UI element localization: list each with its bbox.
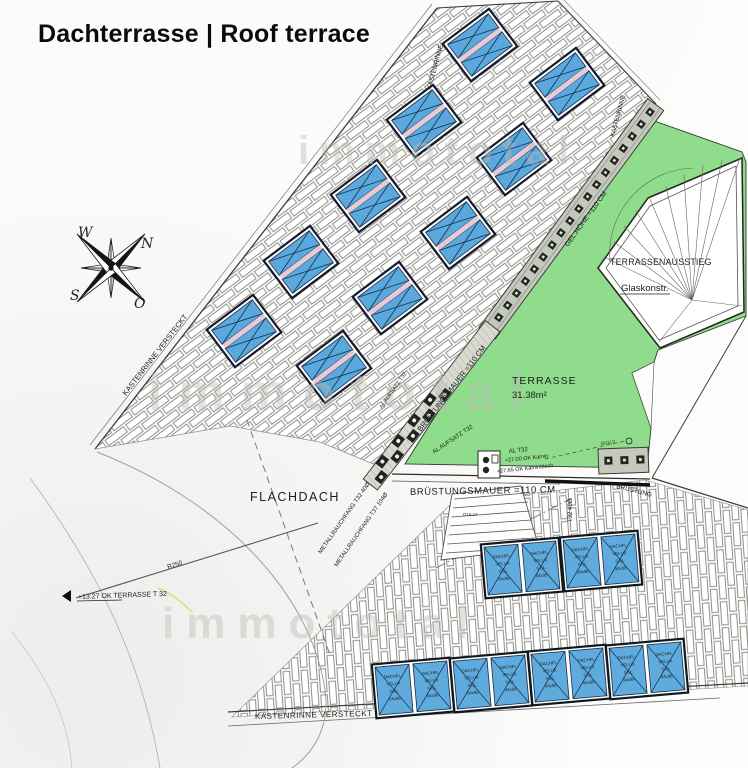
skylight-label: 94x98 xyxy=(583,679,596,685)
compass-s: S xyxy=(70,288,80,304)
skylight-label: 94x98 xyxy=(661,673,674,679)
t32-40-label: T32 40Ø xyxy=(568,498,574,522)
roof-plan-drawing: DACHFL.VELUXGGL94x98DACHFL.VELUXGGL94x98… xyxy=(0,0,748,768)
skylight-label: 94x98 xyxy=(427,692,440,698)
watermark-text: immototal xyxy=(298,129,579,173)
skylight-label: GGL xyxy=(389,688,399,694)
skylight-label: GGL xyxy=(615,558,625,564)
flachdach-label: FLACHDACH xyxy=(250,490,340,504)
skylight-window: DACHFL.VELUXGGL94x98DACHFL.VELUXGGL94x98 xyxy=(481,538,563,599)
skylight-label: 94x98 xyxy=(467,690,480,696)
kastenrinne-bottom-label: KASTENRINNE VERSTECKT xyxy=(255,709,373,721)
skylight-label: 94x98 xyxy=(615,565,628,571)
rauchfang2-label: METALLRAUCHFANG T37 104Ø xyxy=(334,492,390,568)
skylight-window: DACHFL.VELUXGGL94x98DACHFL.VELUXGGL94x98 xyxy=(560,531,642,592)
skylight-label: 94x98 xyxy=(505,686,518,692)
watermark-text: immototal xyxy=(148,364,540,422)
radius-label: R250 xyxy=(167,560,184,571)
skylight-window: DACHFL.VELUXGGL94x98DACHFL.VELUXGGL94x98 xyxy=(606,639,688,700)
ausstieg-label: TERRASSENAUSSTIEG xyxy=(610,257,712,267)
skylight-label: GGL xyxy=(536,565,546,571)
glaskonstr-label: Glaskonstr. xyxy=(621,283,669,294)
skylight-label: GGL xyxy=(505,679,515,685)
terrace-bottom-wall xyxy=(392,474,650,485)
skylight-label: GGL xyxy=(467,682,477,688)
skylight-window: DACHFL.VELUXGGL94x98DACHFL.VELUXGGL94x98 xyxy=(528,645,610,706)
skylight-label: GGL xyxy=(545,675,555,681)
skylight-label: 94x98 xyxy=(545,683,558,689)
skylight-window: DACHFL.VELUXGGL94x98DACHFL.VELUXGGL94x98 xyxy=(450,652,532,713)
skylight-label: 94x98 xyxy=(498,576,511,582)
terrasse-area-label: 31.38m² xyxy=(512,390,547,401)
level-marker-icon xyxy=(62,590,71,602)
compass-w: W xyxy=(78,225,94,241)
gully-label: GULLY xyxy=(463,512,478,517)
skylight-label: GGL xyxy=(583,672,593,678)
skylight-label: GGL xyxy=(577,561,587,567)
scanned-roof-plan-page: DACHFL.VELUXGGL94x98DACHFL.VELUXGGL94x98… xyxy=(0,0,748,768)
skylight-window: DACHFL.VELUXGGL94x98DACHFL.VELUXGGL94x98 xyxy=(372,658,454,719)
skylight-label: GGL xyxy=(498,568,508,574)
skylight-label: GGL xyxy=(623,669,633,675)
skylight-label: 94x98 xyxy=(389,696,402,702)
level-mark-label: +13.27 OK TERRASSE T 32 xyxy=(78,591,167,601)
skylight-label: 94x98 xyxy=(623,677,636,683)
page-title: Dachterrasse | Roof terrace xyxy=(38,20,370,49)
watermark-text: immototal xyxy=(162,599,480,648)
compass-rose xyxy=(77,234,145,302)
compass-o: O xyxy=(134,296,146,312)
skylight-label: 94x98 xyxy=(536,572,549,578)
terrasse-label: TERRASSE xyxy=(512,375,577,387)
railing-short xyxy=(598,447,649,474)
skylight-label: 94x98 xyxy=(577,569,590,575)
compass-n: N xyxy=(140,236,154,252)
skylight-label: GGL xyxy=(427,685,437,691)
skylight-label: GGL xyxy=(661,666,671,672)
